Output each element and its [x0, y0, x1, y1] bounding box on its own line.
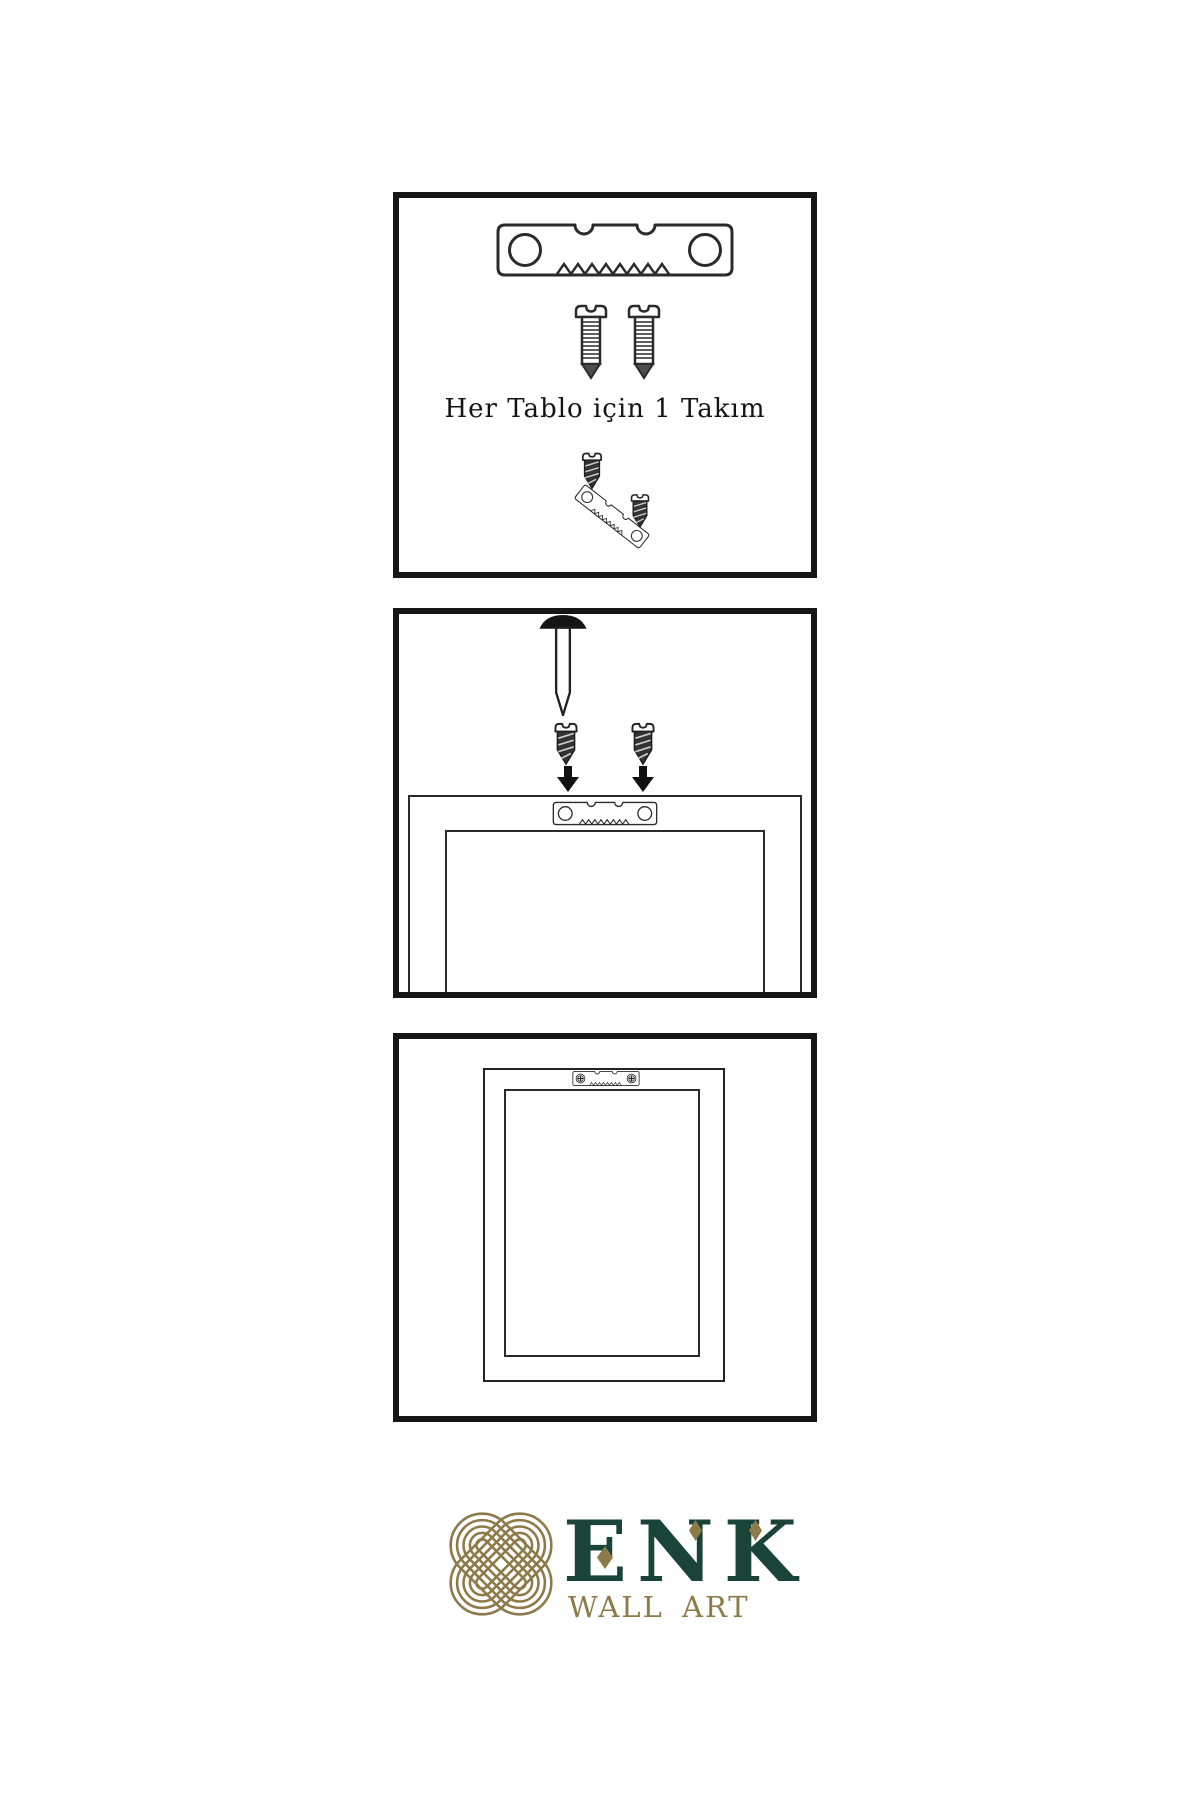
sawtooth-hanger-icon: [495, 222, 735, 278]
step-1-panel: Her Tablo için 1 Takım: [393, 192, 817, 578]
step-3-panel: [393, 1033, 817, 1422]
screw-icon: [626, 302, 662, 380]
step-2-panel: [393, 608, 817, 998]
down-arrow-icon: [557, 766, 579, 792]
screw-icon: [553, 721, 579, 767]
wall-nail-icon: [539, 614, 587, 718]
frame-back-inner-edge: [445, 830, 765, 998]
frame-front-mat: [504, 1089, 700, 1357]
sawtooth-hanger-icon: [552, 801, 658, 826]
brand-knot-icon: [437, 1500, 565, 1628]
brand-name: ENK: [563, 1510, 807, 1594]
screw-icon: [630, 492, 650, 530]
screw-icon: [573, 302, 609, 380]
instruction-sheet: Her Tablo için 1 Takım ENK WALL ART: [0, 0, 1200, 1800]
mounted-sawtooth-hanger-icon: [572, 1069, 640, 1088]
down-arrow-icon: [632, 766, 654, 792]
brand-tagline: WALL ART: [568, 1593, 750, 1622]
screw-icon: [630, 721, 656, 767]
frame-front: [483, 1068, 725, 1382]
kit-caption: Her Tablo için 1 Takım: [399, 394, 811, 424]
